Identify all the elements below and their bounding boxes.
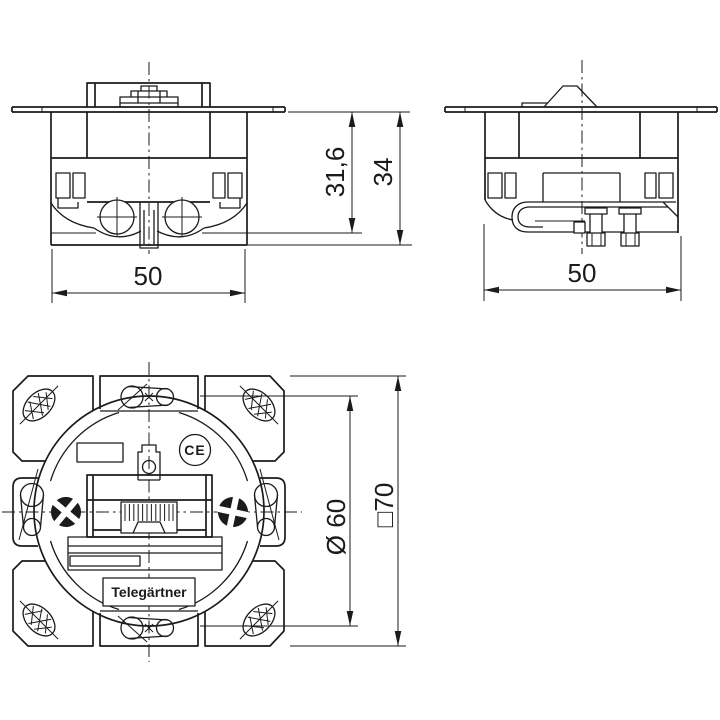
dimension-total-depth: 34 — [368, 112, 403, 245]
terminal-blocks-lateral — [488, 173, 673, 198]
technical-drawing: CE Telegärtner 50 50 31,6 34 Ø 60 — [0, 0, 720, 720]
rear-view: CE Telegärtner — [2, 362, 302, 662]
rj45-latch-lateral — [522, 86, 597, 107]
dimension-body-diameter-text: Ø 60 — [321, 499, 351, 555]
ce-mark: CE — [180, 435, 211, 466]
dimension-front-width: 50 — [52, 249, 245, 303]
socket-body-front — [51, 112, 412, 248]
claw-screw-hole-bottom-left-icon — [11, 592, 66, 647]
lateral-side-view — [445, 60, 717, 254]
rj45-module — [68, 475, 222, 570]
dimension-front-width-text: 50 — [134, 261, 163, 291]
cover-plate-lateral — [445, 107, 717, 112]
clamp-screw-left-icon — [97, 197, 137, 237]
fixing-slot-right — [255, 469, 280, 540]
label-recess — [77, 443, 123, 462]
claw-screw-hole-bottom-right-icon — [231, 592, 286, 647]
fixing-slot-bottom — [118, 616, 174, 642]
dimension-total-depth-text: 34 — [368, 158, 398, 187]
fixing-slot-left — [19, 469, 44, 540]
brand-label-text: Telegärtner — [111, 584, 187, 600]
clamp-screw-right-icon — [162, 197, 202, 237]
dimension-insert-depth-text: 31,6 — [320, 147, 350, 198]
brand-label: Telegärtner — [103, 578, 195, 606]
technical-drawing-page: CE Telegärtner 50 50 31,6 34 Ø 60 — [0, 0, 720, 720]
claw-phillips-screw-right-icon — [213, 492, 252, 531]
ce-mark-text: CE — [184, 442, 205, 458]
claw-screw-hole-top-left-icon — [11, 377, 66, 432]
terminal-bolts-lateral — [574, 208, 641, 246]
dimension-side-width-text: 50 — [568, 258, 597, 288]
dimension-frame-square-text: □70 — [369, 483, 399, 528]
